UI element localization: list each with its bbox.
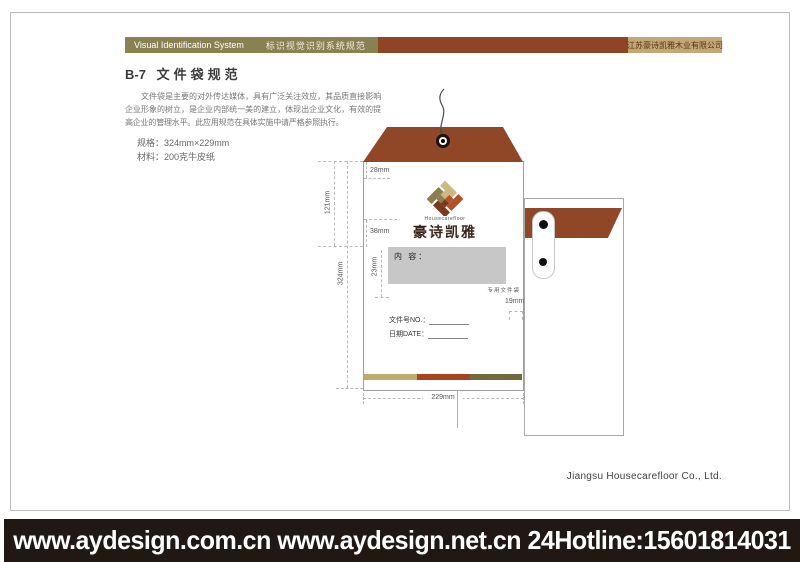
back-button-dot-top — [539, 220, 548, 229]
file-no-label: 文件号NO.： — [389, 315, 429, 325]
dim-19-label: 19mm — [505, 298, 524, 305]
ext-line-bottom — [336, 388, 363, 389]
dim-23-extension — [381, 250, 382, 297]
footer-company: Jiangsu Housecarefloor Co., Ltd. — [567, 471, 722, 482]
dim-121-line — [334, 161, 335, 246]
material-line: 材料：200克牛皮纸 — [137, 150, 215, 163]
ext-line-top — [318, 161, 363, 162]
date-underline — [428, 330, 468, 339]
footer-banner: www.aydesign.com.cn www.aydesign.net.cn … — [4, 519, 800, 562]
section-title: B-7 文件袋规范 — [125, 64, 242, 83]
dim-19-line — [509, 311, 523, 312]
stripe-rust — [417, 374, 470, 380]
dim-23-tick — [375, 297, 389, 298]
content-box-label: 内 容： — [394, 251, 428, 262]
header-company-name: 江苏豪诗凯雅木业有限公司 — [627, 40, 723, 51]
special-bag-label: 专用文件袋 — [466, 286, 520, 294]
dim-23-label: 23mm — [371, 249, 380, 285]
center-fold-mark — [457, 390, 458, 428]
date-label: 日期DATE： — [389, 329, 428, 339]
dim-19-tick-right — [522, 311, 523, 320]
flap-button-dot — [441, 139, 445, 143]
string-icon — [420, 85, 466, 140]
vi-manual-page: Visual Identification System 标识视觉识别系统规范 … — [0, 0, 800, 562]
date-row: 日期DATE： — [389, 329, 468, 339]
header-en-title: Visual Identification System — [134, 40, 244, 50]
file-no-underline — [429, 316, 469, 325]
ext-line-mid — [318, 246, 363, 247]
file-no-row: 文件号NO.： — [389, 315, 469, 325]
header-company-badge: 江苏豪诗凯雅木业有限公司 — [628, 37, 722, 53]
dim-324-line — [347, 161, 348, 388]
header-bar-olive: Visual Identification System 标识视觉识别系统规范 — [125, 37, 378, 53]
dim-229-tick-left — [363, 393, 364, 404]
stripe-tan — [364, 374, 417, 380]
spec-line: 规格：324mm×229mm — [137, 136, 229, 149]
footer-banner-text: www.aydesign.com.cn www.aydesign.net.cn … — [13, 525, 791, 556]
dim-121-label: 121mm — [324, 185, 333, 221]
back-button-dot-bottom — [539, 258, 547, 266]
section-code: B-7 — [125, 67, 146, 82]
dim-38-extension — [366, 220, 367, 247]
brand-logo-icon — [424, 178, 466, 220]
dim-38-label: 38mm — [370, 228, 389, 235]
dim-28-line — [364, 178, 390, 179]
dim-324-label: 324mm — [337, 256, 346, 292]
intro-paragraph: 文件袋是主要的对外传达媒体，具有广泛关注效应，其品质直接影响企业形象的树立，是企… — [125, 90, 381, 129]
dim-19-tick-left — [509, 311, 510, 320]
header-bar-brown — [378, 37, 628, 53]
section-title-text: 文件袋规范 — [157, 67, 242, 82]
brand-name-cn: 豪诗凯雅 — [398, 222, 492, 242]
dim-28-label: 28mm — [370, 167, 389, 174]
stripe-olive — [470, 374, 522, 380]
content-box: 内 容： — [388, 247, 506, 284]
header-cn-title: 标识视觉识别系统规范 — [266, 39, 366, 52]
dim-28-extension — [366, 162, 367, 178]
